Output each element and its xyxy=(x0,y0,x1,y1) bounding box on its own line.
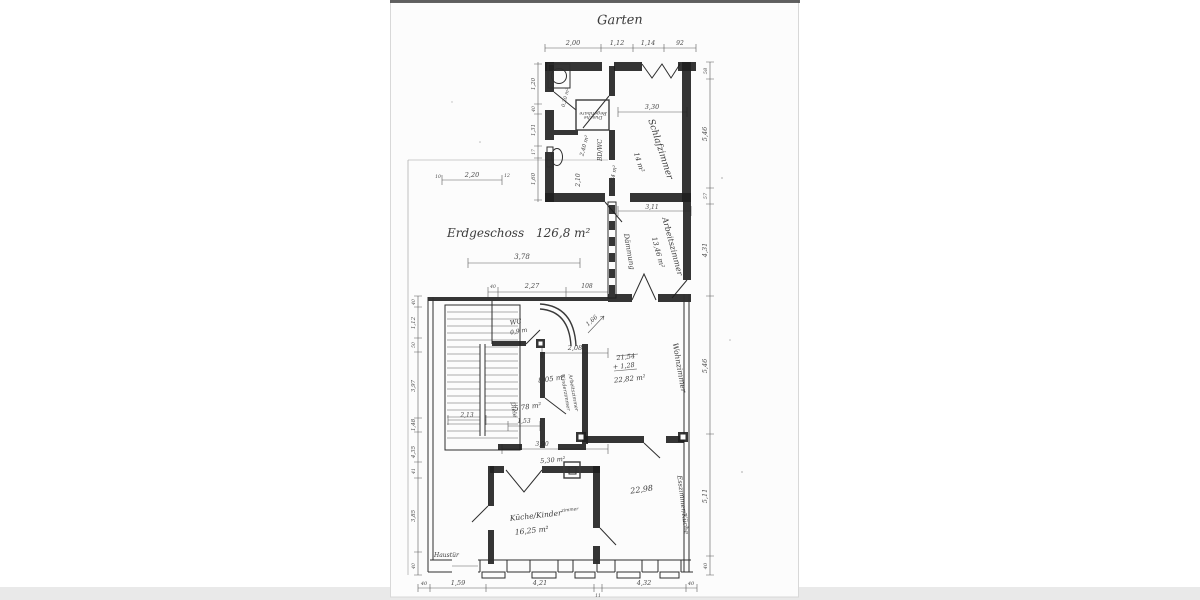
dim-210: 2,10 xyxy=(575,173,582,188)
dim-mid-1: 2,27 xyxy=(524,282,540,290)
dim-annex-left-3: 17 xyxy=(531,149,537,155)
dim-right-3: 4,31 xyxy=(701,243,709,258)
dim-annex-top-0: 2,00 xyxy=(565,39,580,47)
dim-annex-left-2: 1,31 xyxy=(531,124,537,136)
dim-mid-2: 108 xyxy=(581,283,593,290)
scanned-floorplan-page: 2,00 1,12 1,14 92 1,20 40 1,31 17 1,60 5… xyxy=(390,0,800,600)
dim-right-1: 5,46 xyxy=(701,127,709,141)
dim-annex-top-1: 1,12 xyxy=(610,39,624,47)
dim-left-4: 1,48 xyxy=(411,418,417,431)
dim-208: 2,08 xyxy=(567,344,582,352)
label-erdgeschoss: Erdgeschoss xyxy=(446,226,524,240)
dim-right-0: 58 xyxy=(703,68,709,74)
dim-left-1: 1,12 xyxy=(411,316,417,329)
dim-311: 3,11 xyxy=(645,204,658,211)
room-bdwc-name: BD/WC xyxy=(597,139,604,162)
dim-220-left: 10 xyxy=(435,174,441,180)
dim-left-2: 50 xyxy=(411,342,417,348)
dim-left-5: 4,35 xyxy=(411,445,417,459)
dim-left-6: 41 xyxy=(411,468,417,475)
dim-153: 1,53 xyxy=(517,418,531,425)
room-dusche-line2: Dusche xyxy=(584,114,604,120)
dim-annex-left-4: 1,60 xyxy=(531,172,537,185)
dim-bottom-0: 40 xyxy=(420,581,428,587)
dim-330: 3,30 xyxy=(645,103,659,111)
dim-378: 3,78 xyxy=(514,253,530,261)
dim-bottom-1: 1,59 xyxy=(451,579,465,587)
dim-220-right: 12 xyxy=(504,173,510,179)
label-garten: Garten xyxy=(597,13,643,29)
dim-annex-left-0: 1,20 xyxy=(531,77,537,90)
dim-bottom-4: 4,32 xyxy=(636,579,651,587)
dim-left-3: 3,97 xyxy=(411,379,417,392)
dim-left-7: 3,85 xyxy=(411,509,417,522)
dim-left-8: 40 xyxy=(411,563,417,570)
label-floor-area: 126,8 m² xyxy=(536,226,591,240)
dim-bottom-5: 40 xyxy=(687,581,695,587)
dim-213: 2,13 xyxy=(459,412,474,419)
dim-220: 2,20 xyxy=(464,171,479,179)
dim-bottom-2: 4,21 xyxy=(532,579,547,587)
dim-right-6: 40 xyxy=(703,562,709,570)
dim-annex-top-2: 1,14 xyxy=(641,39,655,47)
label-haustuer: Haustür xyxy=(433,552,460,559)
dim-mid-0: 40 xyxy=(489,284,496,290)
dim-right-2: 57 xyxy=(703,192,709,199)
dim-annex-left-1: 40 xyxy=(531,106,537,113)
dim-annex-top-3: 92 xyxy=(676,40,684,47)
dim-left-0: 40 xyxy=(411,299,417,306)
dim-right-4: 5,46 xyxy=(701,359,709,373)
dim-bottom-3: 11 xyxy=(595,593,601,599)
floorplan-drawing: 2,00 1,12 1,14 92 1,20 40 1,31 17 1,60 5… xyxy=(390,0,800,600)
dim-right-5: 5,11 xyxy=(701,489,709,503)
scan-top-shadow xyxy=(390,0,800,3)
